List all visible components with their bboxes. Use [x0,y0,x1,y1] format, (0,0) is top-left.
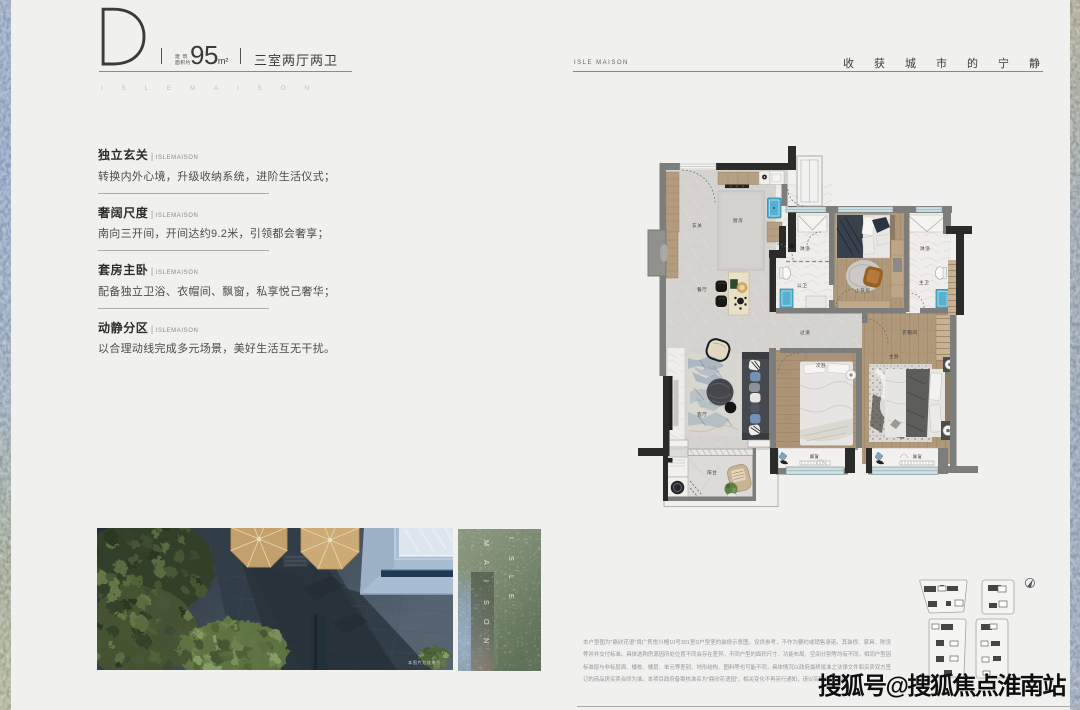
svg-text:飘窗: 飘窗 [810,453,819,459]
svg-text:S: S [482,600,491,605]
svg-text:M: M [482,540,491,546]
svg-text:玄关: 玄关 [692,222,702,229]
svg-text:客厅: 客厅 [697,411,707,418]
svg-text:餐厅: 餐厅 [697,286,707,293]
svg-text:A: A [482,560,491,565]
svg-text:厨房: 厨房 [733,217,743,224]
svg-text:过道: 过道 [800,329,810,336]
svg-text:N: N [482,638,491,643]
svg-text:主卫: 主卫 [919,279,929,285]
svg-text:小孩房: 小孩房 [855,287,871,294]
svg-text:公卫: 公卫 [797,283,807,288]
svg-text:L: L [507,575,516,579]
svg-text:淋浴: 淋浴 [800,245,810,252]
svg-text:I: I [482,580,491,582]
svg-text:阳台: 阳台 [707,469,717,476]
svg-text:本图片为效果图: 本图片为效果图 [408,659,441,666]
svg-text:S: S [507,556,516,561]
svg-text:O: O [482,619,491,625]
svg-text:飘窗: 飘窗 [913,453,922,459]
svg-text:淋浴: 淋浴 [920,245,930,252]
svg-text:E: E [507,594,516,599]
svg-text:次卧: 次卧 [816,362,826,369]
svg-text:主卧: 主卧 [889,353,899,360]
svg-text:衣帽间: 衣帽间 [902,329,918,336]
svg-text:I: I [507,537,516,539]
